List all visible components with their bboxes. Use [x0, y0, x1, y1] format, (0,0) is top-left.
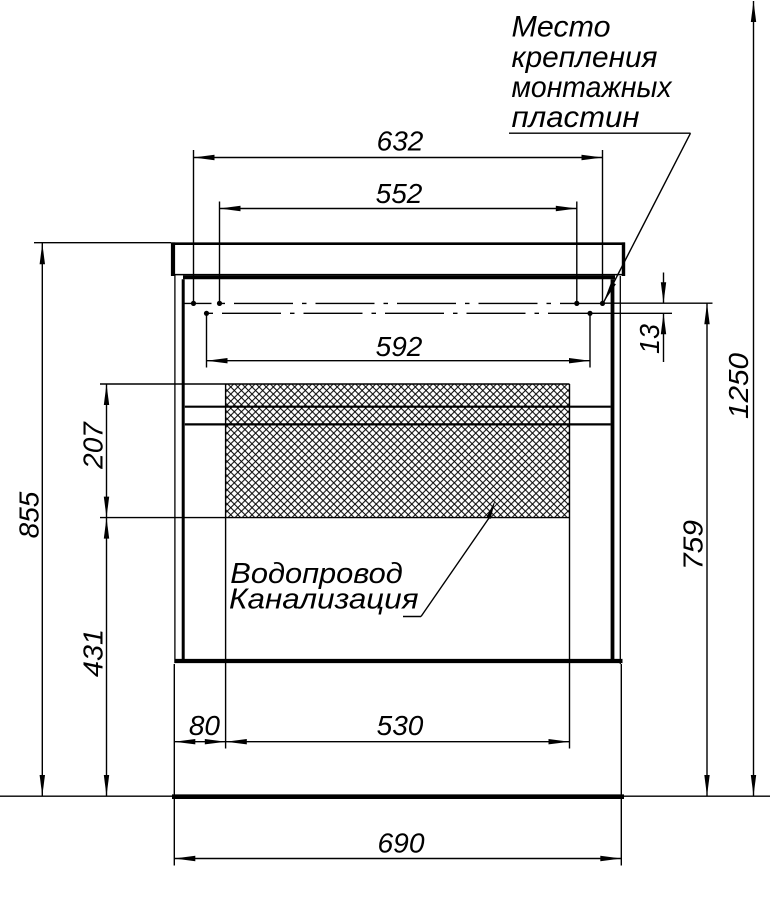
svg-text:690: 690 [378, 828, 425, 859]
svg-text:Место: Место [512, 11, 611, 44]
svg-text:530: 530 [377, 710, 424, 741]
svg-text:552: 552 [376, 178, 423, 209]
svg-text:207: 207 [78, 421, 109, 470]
svg-text:80: 80 [189, 710, 221, 741]
svg-text:13: 13 [634, 324, 665, 354]
svg-text:632: 632 [377, 126, 424, 157]
svg-text:монтажных: монтажных [512, 71, 673, 104]
svg-text:пластин: пластин [512, 101, 640, 134]
svg-text:855: 855 [13, 491, 44, 538]
svg-text:1250: 1250 [723, 353, 754, 419]
svg-text:431: 431 [78, 629, 109, 677]
svg-text:крепления: крепления [512, 41, 658, 74]
svg-text:592: 592 [376, 331, 423, 362]
svg-text:Канализация: Канализация [229, 584, 419, 616]
svg-text:759: 759 [677, 520, 708, 570]
